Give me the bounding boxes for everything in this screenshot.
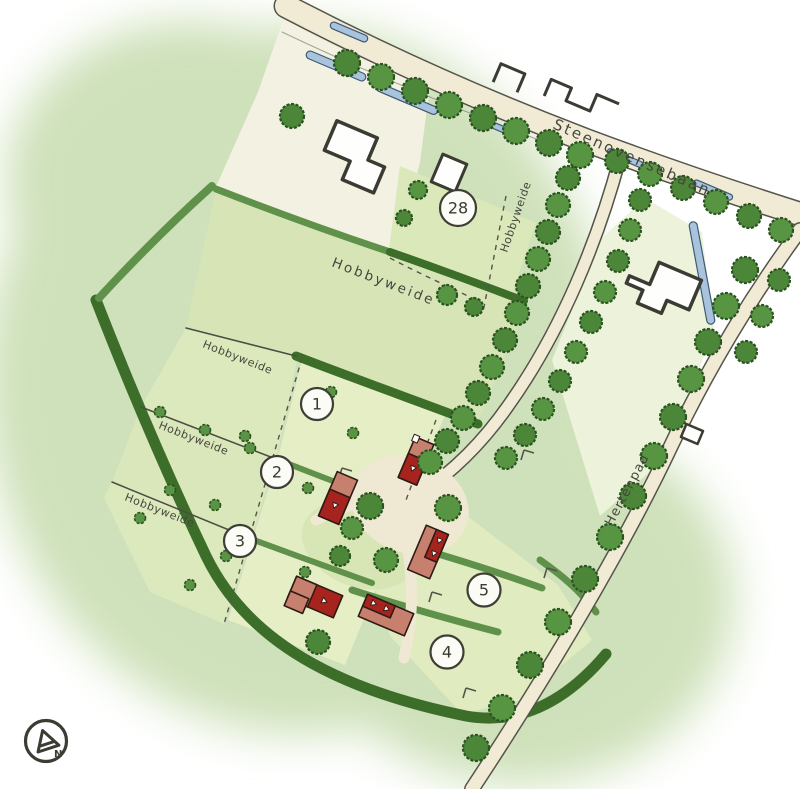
tree-icon xyxy=(436,92,462,118)
tree-icon xyxy=(545,609,571,635)
tree-icon xyxy=(546,193,570,217)
plot-marker-2: 2 xyxy=(261,456,293,488)
plot-number: 3 xyxy=(235,532,245,551)
tree-icon xyxy=(396,210,412,226)
building-outline-east-small xyxy=(681,424,703,444)
plot-marker-28: 28 xyxy=(440,190,476,226)
plot-number: 2 xyxy=(272,463,282,482)
tree-icon xyxy=(735,341,757,363)
tree-icon xyxy=(572,566,598,592)
plot-marker-5: 5 xyxy=(468,574,501,607)
tree-icon xyxy=(580,311,602,333)
tree-icon xyxy=(334,50,360,76)
tree-icon xyxy=(306,630,330,654)
tree-icon xyxy=(374,548,398,572)
bush-icon xyxy=(165,485,176,496)
plot-marker-1: 1 xyxy=(301,388,333,420)
tree-icon xyxy=(732,257,758,283)
tree-icon xyxy=(409,181,427,199)
building-outline-north-1 xyxy=(493,64,525,93)
tree-icon xyxy=(280,104,304,128)
tree-icon xyxy=(330,546,350,566)
tree-icon xyxy=(769,218,793,242)
tree-icon xyxy=(465,298,483,316)
plot-number: 28 xyxy=(448,199,468,218)
tree-icon xyxy=(619,219,641,241)
tree-icon xyxy=(751,305,773,327)
bush-icon xyxy=(348,428,359,439)
tree-icon xyxy=(514,424,536,446)
tree-icon xyxy=(451,406,475,430)
tree-icon xyxy=(597,524,623,550)
tree-icon xyxy=(516,274,540,298)
tree-icon xyxy=(517,652,543,678)
compass-icon: N xyxy=(26,721,67,762)
tree-icon xyxy=(470,105,496,131)
bush-icon xyxy=(300,567,311,578)
bush-icon xyxy=(245,443,256,454)
tree-icon xyxy=(660,404,686,430)
plot-number: 1 xyxy=(312,395,322,414)
bush-icon xyxy=(185,580,196,591)
tree-icon xyxy=(503,118,529,144)
bush-icon xyxy=(240,431,251,442)
tree-icon xyxy=(435,429,459,453)
plot-marker-3: 3 xyxy=(224,525,256,557)
tree-icon xyxy=(493,328,517,352)
tree-icon xyxy=(435,495,461,521)
bush-icon xyxy=(210,500,221,511)
tree-icon xyxy=(402,78,428,104)
bush-icon xyxy=(303,483,314,494)
tree-icon xyxy=(629,189,651,211)
tree-icon xyxy=(463,735,489,761)
tree-icon xyxy=(368,64,394,90)
plot-number: 5 xyxy=(479,581,489,600)
bush-icon xyxy=(135,513,146,524)
plot-number: 4 xyxy=(442,643,452,662)
compass-north-label: N xyxy=(54,749,62,760)
tree-icon xyxy=(505,301,529,325)
tree-icon xyxy=(536,220,560,244)
tree-icon xyxy=(695,329,721,355)
tree-icon xyxy=(713,293,739,319)
site-plan: 28 1 2 3 4 5 Steenovensebaan Hertenpad H… xyxy=(0,0,800,789)
tree-icon xyxy=(678,366,704,392)
tree-icon xyxy=(607,250,629,272)
tree-icon xyxy=(594,281,616,303)
tree-icon xyxy=(489,695,515,721)
tree-icon xyxy=(532,398,554,420)
tree-icon xyxy=(466,381,490,405)
tree-icon xyxy=(556,166,580,190)
tree-icon xyxy=(526,247,550,271)
plot-marker-4: 4 xyxy=(431,636,464,669)
tree-icon xyxy=(768,269,790,291)
site-plan-canvas: 28 1 2 3 4 5 Steenovensebaan Hertenpad H… xyxy=(0,0,800,789)
tree-icon xyxy=(495,447,517,469)
tree-icon xyxy=(549,370,571,392)
bush-icon xyxy=(155,407,166,418)
tree-icon xyxy=(437,285,457,305)
tree-icon xyxy=(357,493,383,519)
tree-icon xyxy=(737,204,761,228)
tree-icon xyxy=(341,517,363,539)
tree-icon xyxy=(565,341,587,363)
tree-icon xyxy=(480,355,504,379)
tree-icon xyxy=(418,450,442,474)
